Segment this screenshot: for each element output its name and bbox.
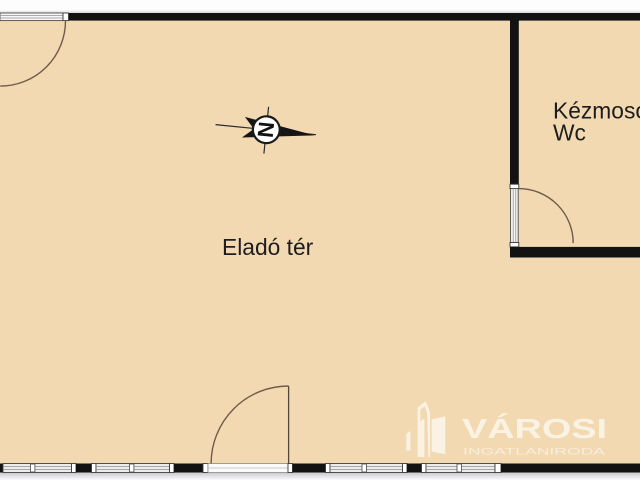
- svg-text:Wc: Wc: [553, 120, 586, 146]
- svg-text:VÁROSI: VÁROSI: [462, 413, 607, 444]
- svg-text:Eladó tér: Eladó tér: [222, 234, 314, 260]
- svg-text:N: N: [253, 121, 279, 139]
- svg-text:INGATLANIRODA: INGATLANIRODA: [463, 446, 606, 457]
